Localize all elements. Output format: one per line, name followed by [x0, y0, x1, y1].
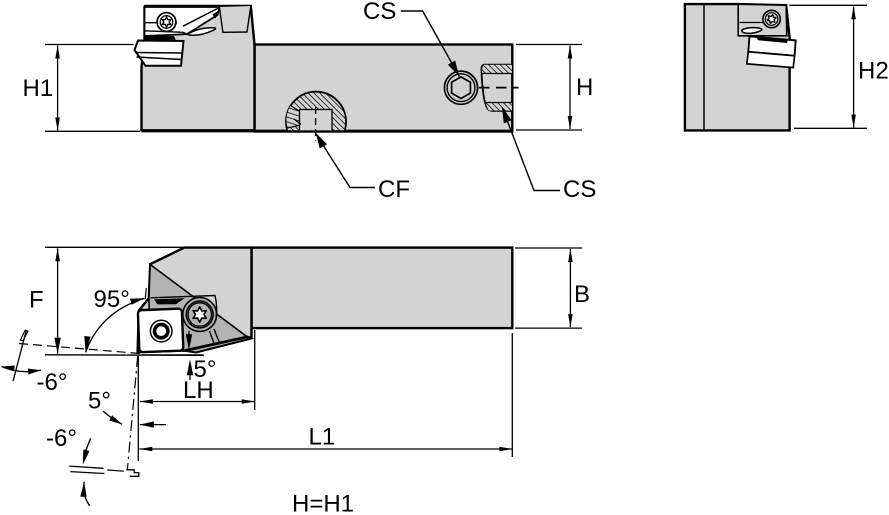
svg-text:95°: 95° [94, 286, 130, 313]
svg-text:L1: L1 [309, 424, 336, 451]
svg-text:CF: CF [378, 176, 410, 203]
svg-text:H=H1: H=H1 [292, 491, 354, 515]
svg-text:B: B [574, 281, 590, 308]
svg-text:F: F [29, 287, 44, 314]
svg-text:LH: LH [183, 377, 214, 404]
svg-text:H: H [576, 74, 593, 101]
svg-text:5°: 5° [88, 388, 111, 415]
svg-text:CS: CS [563, 176, 596, 203]
svg-text:H2: H2 [858, 58, 889, 85]
svg-text:H1: H1 [23, 75, 54, 102]
svg-text:-6°: -6° [37, 369, 68, 396]
svg-text:-6°: -6° [46, 425, 77, 452]
svg-text:CS: CS [363, 0, 396, 25]
